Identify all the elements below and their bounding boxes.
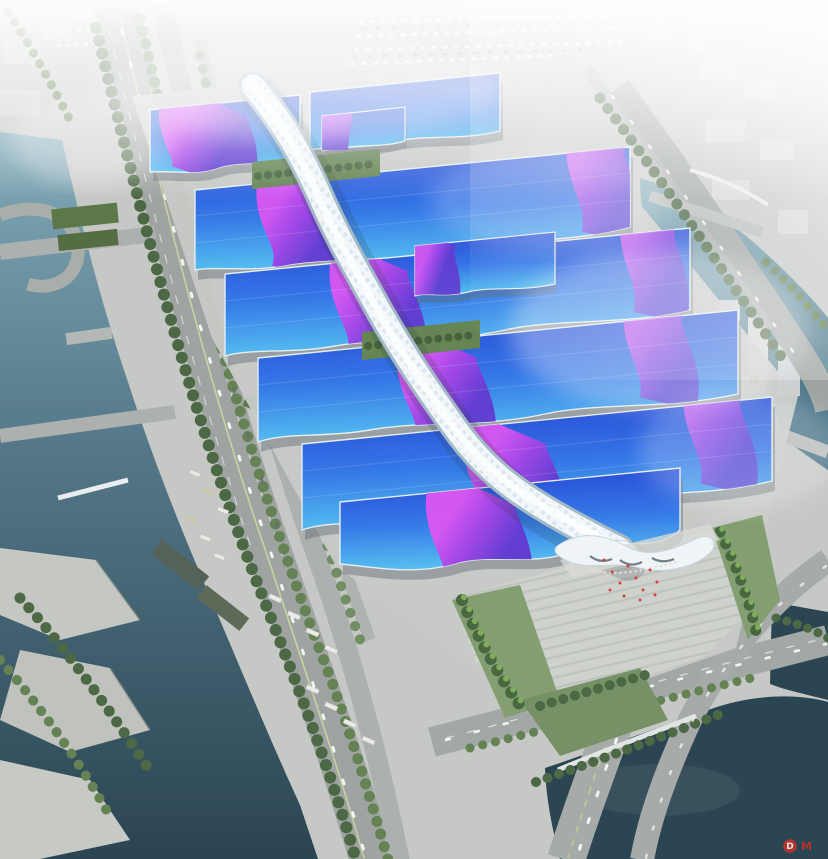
watermark-logo-letter: D [786,842,793,852]
atmosphere-haze [0,0,828,859]
light-veil [0,0,828,859]
render-canvas: D M [0,0,828,859]
aerial-render-exhibition-center: D M [0,0,828,859]
watermark-text: M [801,840,812,853]
